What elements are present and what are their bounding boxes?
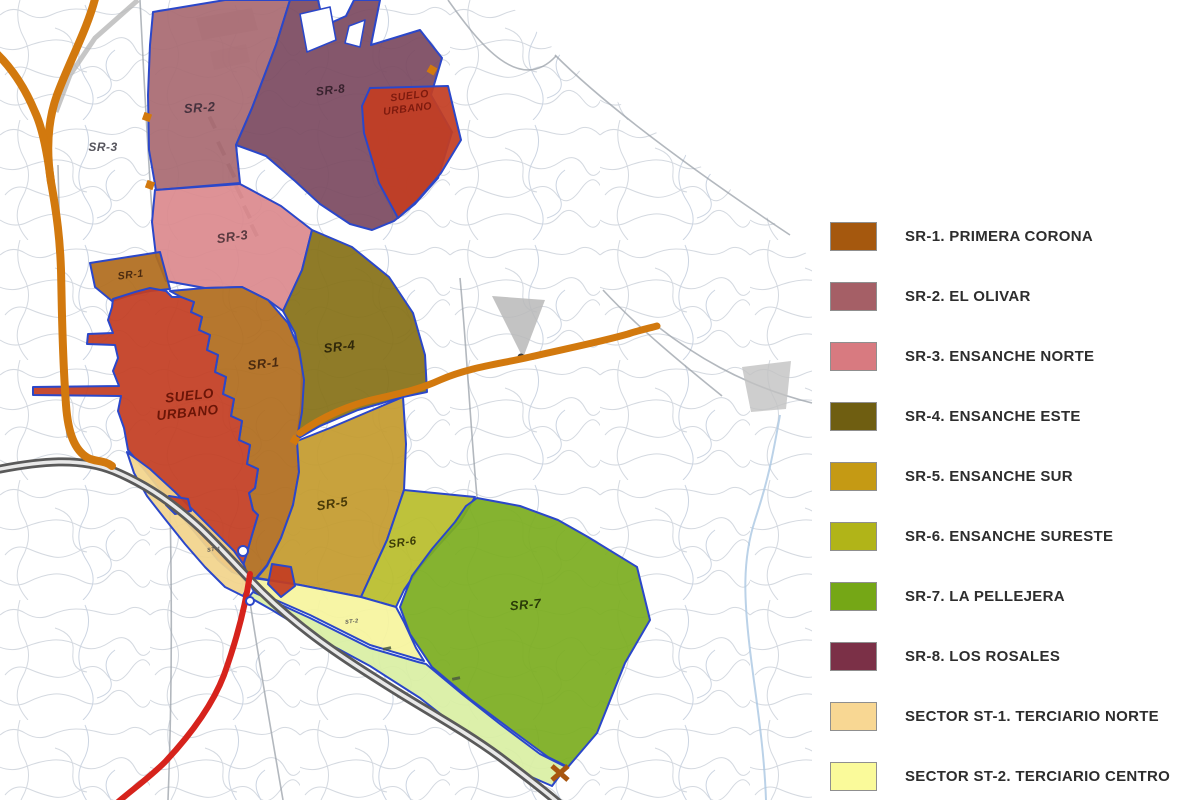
zoning-map-svg: SR-2 SR-8 SUELO URBANO SR-3 SR-3 SR-1 SR… [0,0,820,800]
legend-swatch-sr2 [830,282,877,311]
planning-map-page: SR-2 SR-8 SUELO URBANO SR-3 SR-3 SR-1 SR… [0,0,1200,800]
legend-item-sr3: SR-3. ENSANCHE NORTE [830,341,1170,371]
legend-item-sr5: SR-5. ENSANCHE SUR [830,461,1170,491]
legend-swatch-st1 [830,702,877,731]
legend-swatch-sr8 [830,642,877,671]
legend-item-st1: SECTOR ST-1. TERCIARIO NORTE [830,701,1170,731]
legend-label: SR-2. EL OLIVAR [905,288,1031,305]
roundabout-node [238,546,248,556]
legend-swatch-sr7 [830,582,877,611]
legend-label: SR-8. LOS ROSALES [905,648,1060,665]
legend-item-sr8: SR-8. LOS ROSALES [830,641,1170,671]
roundabout-node [246,597,254,605]
legend-item-st2: SECTOR ST-2. TERCIARIO CENTRO [830,761,1170,791]
legend-item-sr1: SR-1. PRIMERA CORONA [830,221,1170,251]
legend-swatch-st2 [830,762,877,791]
legend-label: SR-7. LA PELLEJERA [905,588,1065,605]
legend-swatch-sr6 [830,522,877,551]
legend-label: SR-5. ENSANCHE SUR [905,468,1073,485]
legend-item-sr7: SR-7. LA PELLEJERA [830,581,1170,611]
legend-item-sr6: SR-6. ENSANCHE SURESTE [830,521,1170,551]
label-sr7: SR-7 [509,596,542,614]
map-legend: SR-1. PRIMERA CORONA SR-2. EL OLIVAR SR-… [830,221,1170,791]
legend-label: SR-4. ENSANCHE ESTE [905,408,1081,425]
legend-label: SECTOR ST-1. TERCIARIO NORTE [905,708,1159,725]
legend-label: SR-3. ENSANCHE NORTE [905,348,1094,365]
legend-swatch-sr1 [830,222,877,251]
legend-item-sr2: SR-2. EL OLIVAR [830,281,1170,311]
legend-item-sr4: SR-4. ENSANCHE ESTE [830,401,1170,431]
legend-label: SR-6. ENSANCHE SURESTE [905,528,1113,545]
label-sr2: SR-2 [183,99,216,116]
map-canvas: SR-2 SR-8 SUELO URBANO SR-3 SR-3 SR-1 SR… [0,0,820,800]
legend-label: SECTOR ST-2. TERCIARIO CENTRO [905,768,1170,785]
legend-swatch-sr5 [830,462,877,491]
label-sr3-outer: SR-3 [88,140,117,154]
legend-label: SR-1. PRIMERA CORONA [905,228,1093,245]
legend-swatch-sr4 [830,402,877,431]
legend-swatch-sr3 [830,342,877,371]
